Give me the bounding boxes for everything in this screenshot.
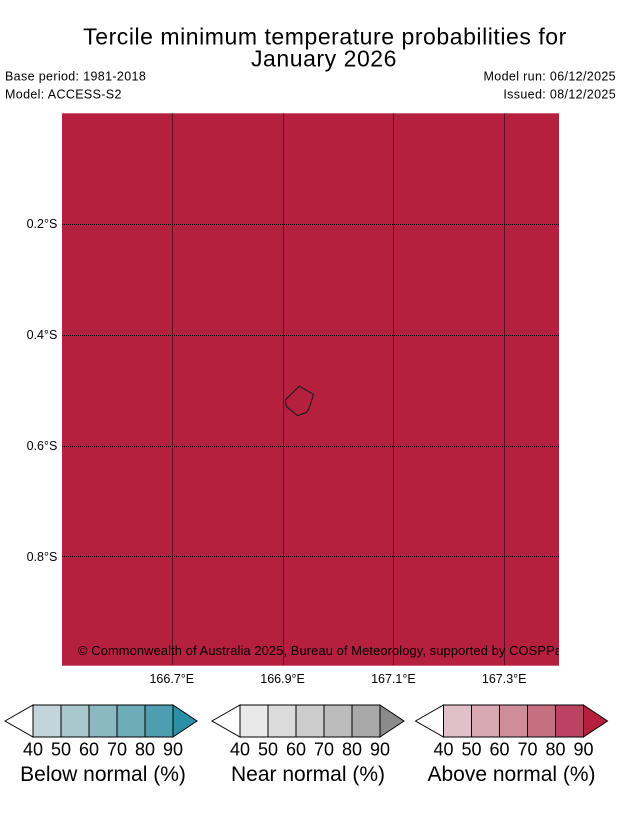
svg-text:Model: ACCESS-S2: Model: ACCESS-S2: [5, 87, 122, 101]
svg-text:Below normal (%): Below normal (%): [20, 763, 186, 786]
svg-text:166.7°E: 166.7°E: [149, 672, 194, 686]
svg-text:January 2026: January 2026: [251, 46, 397, 72]
svg-text:90: 90: [370, 740, 390, 760]
svg-text:167.1°E: 167.1°E: [371, 672, 416, 686]
svg-text:50: 50: [461, 740, 481, 760]
svg-text:70: 70: [107, 740, 127, 760]
svg-text:50: 50: [258, 740, 278, 760]
svg-text:80: 80: [135, 740, 155, 760]
svg-text:80: 80: [545, 740, 565, 760]
svg-text:Base period: 1981-2018: Base period: 1981-2018: [5, 69, 146, 83]
svg-text:40: 40: [230, 740, 250, 760]
svg-text:50: 50: [51, 740, 71, 760]
svg-text:Issued: 08/12/2025: Issued: 08/12/2025: [503, 87, 616, 101]
svg-text:0.2°S: 0.2°S: [27, 217, 58, 231]
svg-text:40: 40: [23, 740, 43, 760]
svg-text:0.8°S: 0.8°S: [27, 550, 58, 564]
svg-text:167.3°E: 167.3°E: [482, 672, 527, 686]
svg-text:90: 90: [163, 740, 183, 760]
svg-text:0.4°S: 0.4°S: [27, 328, 58, 342]
svg-text:Above normal (%): Above normal (%): [427, 763, 595, 786]
svg-text:60: 60: [79, 740, 99, 760]
svg-text:© Commonwealth of Australia 20: © Commonwealth of Australia 2025, Bureau…: [78, 643, 569, 658]
svg-text:Model run: 06/12/2025: Model run: 06/12/2025: [484, 69, 616, 83]
svg-text:90: 90: [573, 740, 593, 760]
svg-text:80: 80: [342, 740, 362, 760]
svg-text:166.9°E: 166.9°E: [260, 672, 305, 686]
svg-text:40: 40: [433, 740, 453, 760]
svg-text:70: 70: [517, 740, 537, 760]
svg-text:0.6°S: 0.6°S: [27, 439, 58, 453]
svg-text:60: 60: [286, 740, 306, 760]
svg-text:60: 60: [489, 740, 509, 760]
svg-text:Near normal (%): Near normal (%): [231, 763, 385, 786]
svg-text:70: 70: [314, 740, 334, 760]
